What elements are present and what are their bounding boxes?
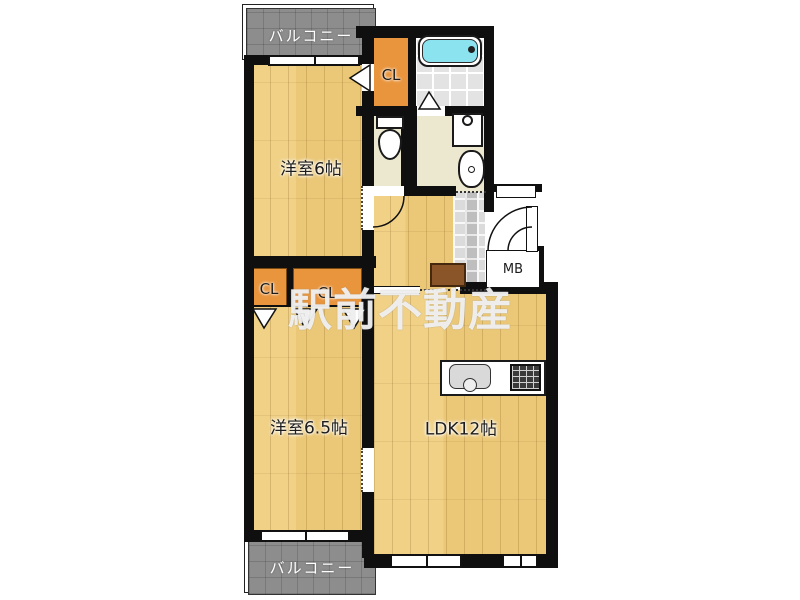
toilet-door-arc [373,196,404,227]
entrance-door-inner-arc [508,227,532,251]
bathroom-folding-door-icon [419,92,440,109]
closet-left-folding-door-icon [253,309,276,328]
floor-plan: バルコニー バルコニー [0,0,800,600]
closet-top-folding-door-icon [350,65,370,91]
entrance-door-arc [488,207,532,251]
watermark-text: 駅前不動産 [288,274,513,338]
